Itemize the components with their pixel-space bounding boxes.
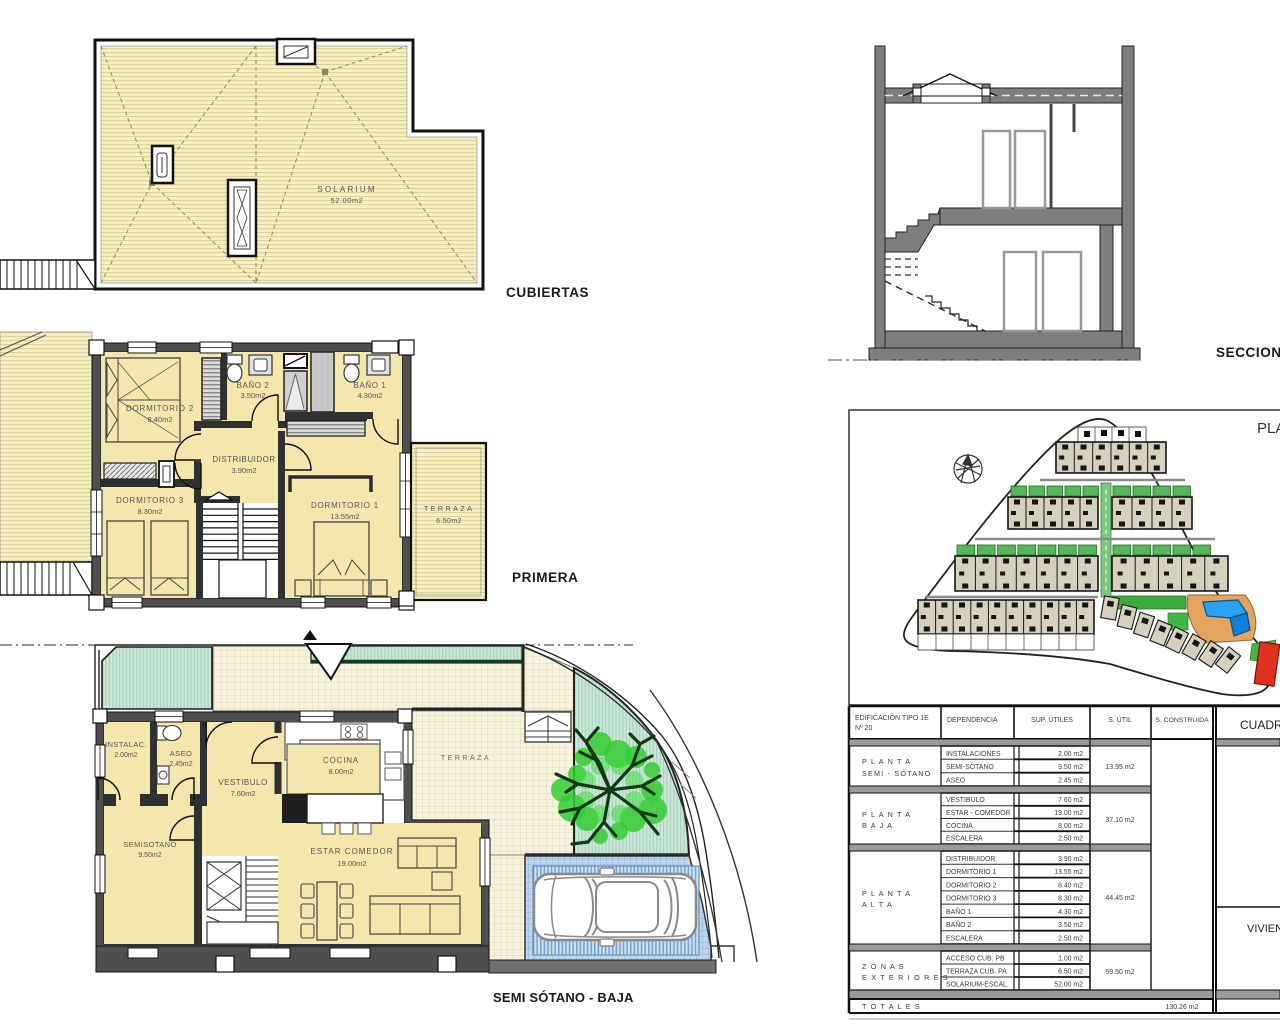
svg-text:2.50 m2: 2.50 m2: [1058, 936, 1083, 943]
svg-text:SECCION: SECCION: [1216, 345, 1280, 360]
svg-text:59.50 m2: 59.50 m2: [1105, 969, 1134, 976]
svg-text:TERRAZA: TERRAZA: [441, 755, 491, 762]
svg-text:P L A N T A: P L A N T A: [862, 810, 911, 819]
svg-text:13.55 m2: 13.55 m2: [1054, 869, 1083, 876]
svg-text:SOLARIUM-ESCAL.: SOLARIUM-ESCAL.: [946, 982, 1009, 989]
svg-text:130.26 m2: 130.26 m2: [1165, 1004, 1198, 1011]
svg-text:CUADRO: CUADRO: [1240, 718, 1280, 732]
svg-text:P L A N T A: P L A N T A: [862, 757, 911, 766]
svg-text:CUBIERTAS: CUBIERTAS: [506, 285, 589, 300]
svg-text:1.00 m2: 1.00 m2: [1058, 956, 1083, 963]
svg-text:S. ÚTIL: S. ÚTIL: [1108, 715, 1132, 724]
svg-text:TERRAZA: TERRAZA: [424, 504, 474, 513]
svg-text:6.50m2: 6.50m2: [436, 518, 462, 525]
svg-text:BAÑO 1: BAÑO 1: [946, 907, 971, 916]
svg-text:T O T A L E S: T O T A L E S: [862, 1002, 921, 1011]
svg-text:PLAN: PLAN: [1257, 420, 1280, 437]
svg-text:Nº 20: Nº 20: [855, 725, 872, 732]
svg-text:VESTIBULO: VESTIBULO: [218, 778, 267, 787]
svg-text:8.00m2: 8.00m2: [328, 767, 353, 776]
svg-text:BAÑO 2: BAÑO 2: [946, 920, 971, 929]
svg-text:PRIMERA: PRIMERA: [512, 570, 578, 585]
svg-text:VESTIBULO: VESTIBULO: [946, 797, 985, 804]
svg-text:INSTALAC.: INSTALAC.: [105, 740, 147, 749]
svg-text:3.90 m2: 3.90 m2: [1058, 856, 1083, 863]
svg-text:COCINA: COCINA: [323, 756, 359, 765]
svg-text:3.50 m2: 3.50 m2: [1058, 922, 1083, 929]
svg-text:19.00m2: 19.00m2: [337, 859, 366, 868]
svg-text:2.00 m2: 2.00 m2: [1058, 751, 1083, 758]
svg-text:VIVIEN: VIVIEN: [1247, 923, 1280, 935]
svg-text:E X T E R I O R E S: E X T E R I O R E S: [862, 973, 949, 982]
svg-text:SEMI SÓTANO - BAJA: SEMI SÓTANO - BAJA: [493, 990, 634, 1005]
svg-text:SEMI-SÓTANO: SEMI-SÓTANO: [946, 762, 994, 771]
svg-text:SUP. ÚTILES: SUP. ÚTILES: [1031, 715, 1073, 724]
svg-text:INSTALACIONES: INSTALACIONES: [946, 751, 1001, 758]
svg-text:P L A N T A: P L A N T A: [862, 889, 911, 898]
svg-text:S. CONSTRUIDA: S. CONSTRUIDA: [1155, 717, 1209, 724]
svg-text:SOLARIUM: SOLARIUM: [317, 185, 376, 194]
svg-text:EDIFICACIÓN TIPO 1E: EDIFICACIÓN TIPO 1E: [855, 713, 929, 722]
svg-text:DISTRIBUIDOR: DISTRIBUIDOR: [946, 856, 995, 863]
svg-text:DORMITORIO 1: DORMITORIO 1: [946, 869, 997, 876]
svg-text:ACCESO CUB. PB: ACCESO CUB. PB: [946, 956, 1005, 963]
svg-text:DORMITORIO 1: DORMITORIO 1: [311, 501, 379, 510]
svg-text:8.30 m2: 8.30 m2: [1058, 896, 1083, 903]
svg-text:ESTAR - COMEDOR: ESTAR - COMEDOR: [946, 810, 1011, 817]
svg-text:2.00m2: 2.00m2: [114, 752, 137, 759]
svg-text:ESCALERA: ESCALERA: [946, 936, 983, 943]
svg-text:9.50m2: 9.50m2: [138, 852, 161, 859]
svg-text:7.60m2: 7.60m2: [230, 789, 255, 798]
svg-text:B A J A: B A J A: [862, 821, 893, 830]
svg-text:ASEO: ASEO: [170, 749, 192, 758]
svg-text:DEPENDENCIA: DEPENDENCIA: [947, 717, 998, 724]
svg-text:2.50 m2: 2.50 m2: [1058, 836, 1083, 843]
svg-text:6.50 m2: 6.50 m2: [1058, 969, 1083, 976]
svg-text:8.00 m2: 8.00 m2: [1058, 823, 1083, 830]
svg-text:ESCALERA: ESCALERA: [946, 836, 983, 843]
svg-text:BAÑO 2: BAÑO 2: [237, 381, 270, 390]
svg-text:SEMISOTANO: SEMISOTANO: [123, 840, 176, 849]
svg-text:DISTRIBUIDOR: DISTRIBUIDOR: [212, 455, 275, 464]
svg-text:44.45 m2: 44.45 m2: [1105, 895, 1134, 902]
svg-text:13.55m2: 13.55m2: [330, 512, 359, 521]
svg-text:9.50 m2: 9.50 m2: [1058, 764, 1083, 771]
svg-text:3.50m2: 3.50m2: [240, 391, 265, 400]
svg-text:SEMI - SÓTANO: SEMI - SÓTANO: [862, 769, 931, 778]
svg-text:ASEO: ASEO: [946, 778, 966, 785]
svg-text:52.00 m2: 52.00 m2: [1054, 982, 1083, 989]
svg-text:TERRAZA CUB. PA: TERRAZA CUB. PA: [946, 969, 1007, 976]
svg-text:DORMITORIO 2: DORMITORIO 2: [946, 882, 997, 889]
svg-text:2.45 m2: 2.45 m2: [1058, 778, 1083, 785]
svg-text:Z O N A S: Z O N A S: [862, 962, 905, 971]
svg-text:13.95 m2: 13.95 m2: [1105, 764, 1134, 771]
svg-text:52.00m2: 52.00m2: [331, 196, 364, 205]
svg-text:8.30m2: 8.30m2: [137, 507, 162, 516]
svg-text:37.10 m2: 37.10 m2: [1105, 817, 1134, 824]
svg-text:DORMITORIO 2: DORMITORIO 2: [126, 404, 194, 413]
svg-text:2.45m2: 2.45m2: [169, 761, 192, 768]
svg-text:A L T A: A L T A: [862, 900, 893, 909]
svg-text:BAÑO 1: BAÑO 1: [354, 381, 387, 390]
svg-text:8.40m2: 8.40m2: [147, 415, 172, 424]
svg-text:4.30 m2: 4.30 m2: [1058, 909, 1083, 916]
svg-text:4.30m2: 4.30m2: [357, 391, 382, 400]
svg-text:DORMITORIO 3: DORMITORIO 3: [116, 496, 184, 505]
svg-text:7.60 m2: 7.60 m2: [1058, 797, 1083, 804]
svg-text:19.00 m2: 19.00 m2: [1054, 810, 1083, 817]
svg-text:DORMITORIO 3: DORMITORIO 3: [946, 896, 997, 903]
svg-text:8.40 m2: 8.40 m2: [1058, 882, 1083, 889]
svg-text:3.90m2: 3.90m2: [231, 466, 256, 475]
svg-text:ESTAR COMEDOR: ESTAR COMEDOR: [310, 847, 393, 856]
svg-text:COCINA: COCINA: [946, 823, 973, 830]
